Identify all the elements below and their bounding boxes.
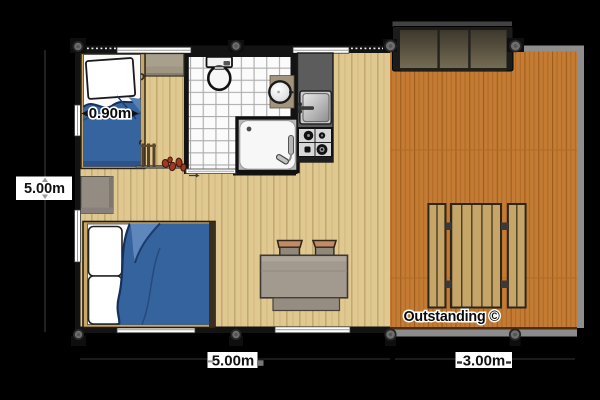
svg-text:0.90m: 0.90m (89, 105, 132, 122)
svg-text:5.00m: 5.00m (212, 353, 255, 370)
svg-text:Outstanding ©: Outstanding © (404, 309, 501, 325)
svg-text:5.00m: 5.00m (24, 181, 65, 197)
svg-text:3.00m: 3.00m (463, 353, 506, 370)
